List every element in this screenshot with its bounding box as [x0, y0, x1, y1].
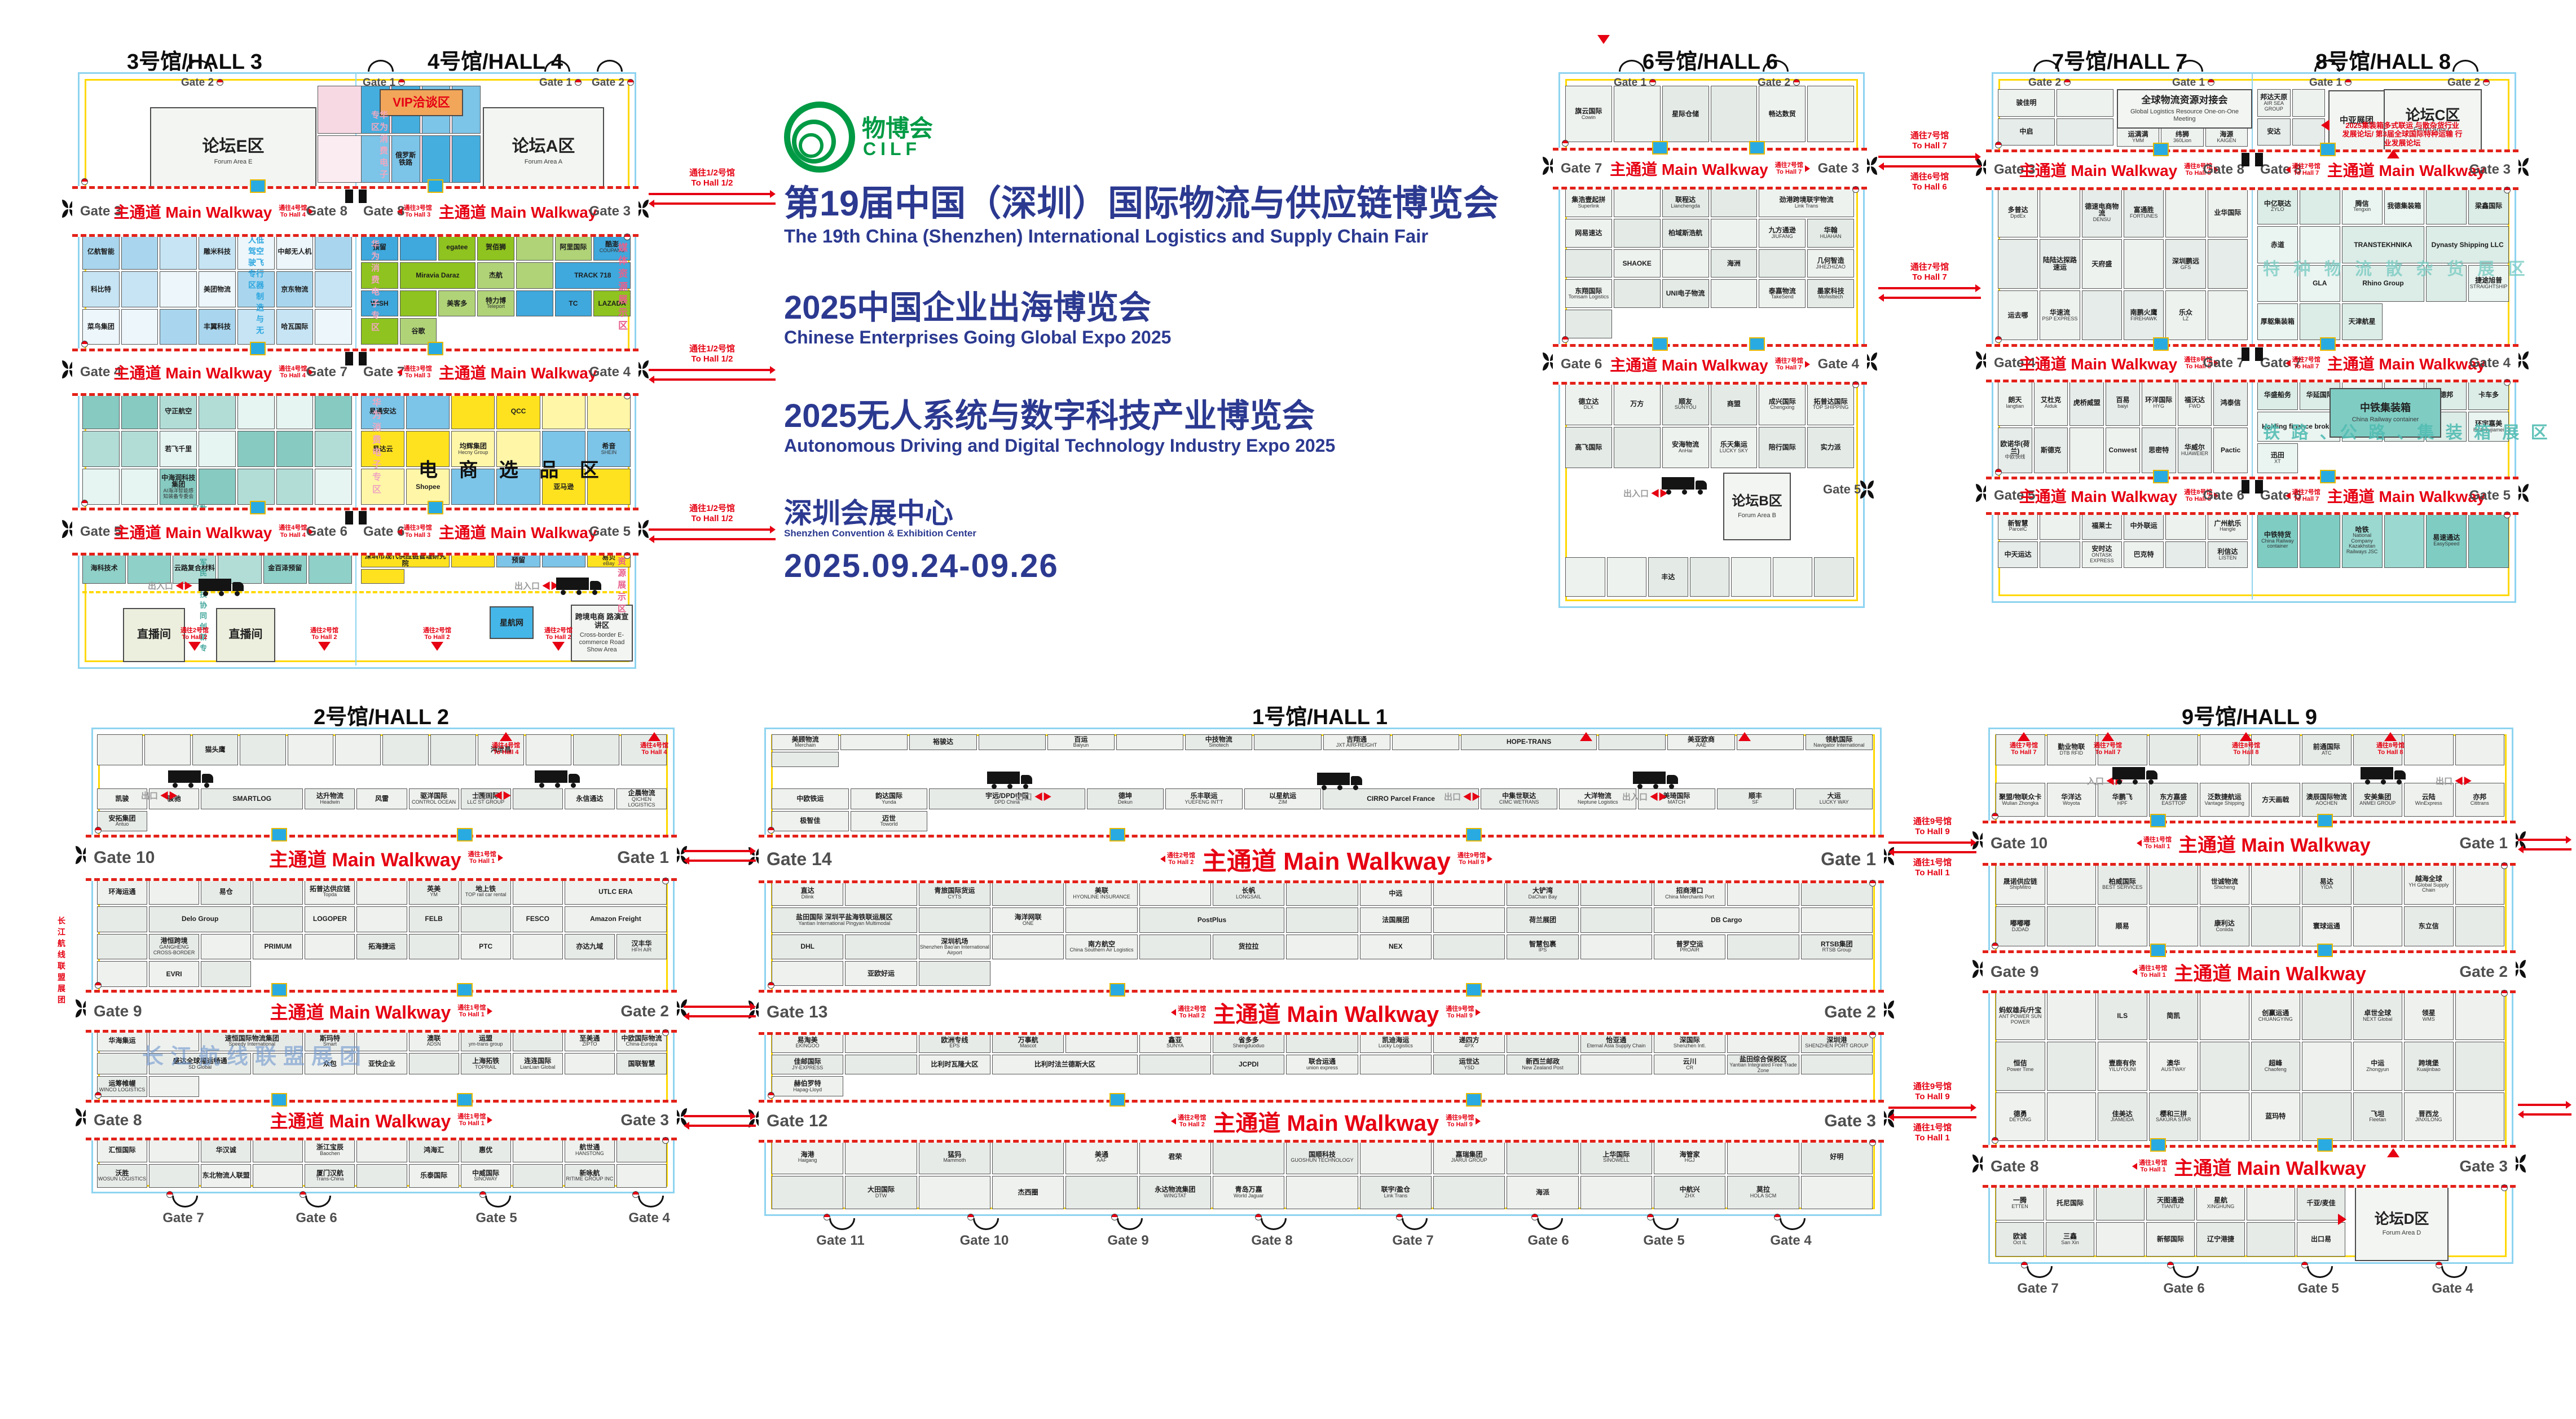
booth-feature: 环海运通: [97, 879, 147, 905]
connector-arrow-right: [1878, 153, 1981, 161]
arrow-bar: [654, 538, 776, 540]
booth-cell: [919, 1176, 990, 1210]
main-walkway: Gate 5主通道 Main Walkway通往4号馆To Hall 4Gate…: [72, 508, 639, 556]
arrow-u-icon: [648, 732, 660, 741]
hydrant-icon: [1992, 1137, 1998, 1144]
booth-name-en: China Southern Air Logistics: [1069, 948, 1133, 953]
booth-name-zh: 顺丰: [1749, 792, 1762, 800]
expo3-title-zh: 2025无人系统与数字科技产业博览会: [784, 389, 1315, 437]
booth-name-en: langtian: [2006, 404, 2024, 409]
booth-cell: [1727, 935, 1799, 959]
walkway-annotation-text: 通往2号馆To Hall 2: [1178, 1006, 1206, 1019]
walkway-annotation-text: 通往2号馆To Hall 2: [1178, 1114, 1206, 1128]
booth-feature: 上海拓铁TOPRAIL: [461, 1053, 511, 1074]
booth-name-en: Power Time: [2007, 1067, 2034, 1073]
booth-feature: 蓝玛特: [2251, 1092, 2301, 1141]
gate-label: Gate 8: [2203, 162, 2244, 178]
booth-feature: 跨境堡Kuaijinbao: [2404, 1042, 2454, 1090]
door-wing: [642, 530, 649, 538]
hall-connector: 通往1/2号馆To Hall 1/2: [649, 504, 776, 543]
booth-feature: 凯迪海运Lucky Logistics: [1360, 1033, 1432, 1053]
booth-name-zh: 预留: [512, 557, 525, 564]
connector-label-top-en: To Hall 9: [1913, 1092, 1952, 1102]
booth-cell: [406, 393, 450, 429]
truck-part: [204, 783, 209, 788]
booth-cell: [2455, 864, 2505, 905]
booth-name-en: JY-EXPRESS: [792, 1065, 823, 1071]
booth-feature: 深圳港SHENZHEN PORT GROUP: [1801, 1033, 1873, 1053]
booth-feature: 华盛船务: [2257, 380, 2298, 410]
arrow-bar: [689, 860, 756, 862]
truck-icon: [1633, 769, 1683, 790]
booth-name-en: Dekun: [1118, 800, 1133, 805]
booth-name-en: Wulian Zhongka: [2002, 801, 2038, 807]
hydrant-icon: [824, 1214, 830, 1220]
booth-feature: 赫伯罗特Hapag-Lloyd: [772, 1076, 843, 1096]
direction-arrow-label: 通往4号馆To Hall 4: [640, 742, 668, 756]
booth-name-zh: 裕骏达: [933, 738, 953, 746]
booth-name-en: AOCHEN: [2315, 801, 2337, 807]
booth-name-zh: 梁鑫国际: [2475, 202, 2502, 210]
booth-name-zh: 亿航智能: [87, 248, 115, 255]
direction-arrow: [2371, 149, 2416, 158]
walkway-annotation-zh: 通往3号馆: [404, 365, 432, 372]
booth-cell: [1801, 1055, 1873, 1075]
booth-feature: 易淘美EKINGOO: [772, 1033, 843, 1053]
gate-label: Gate 6: [2163, 1281, 2204, 1297]
booth-cell: [1801, 907, 1873, 932]
truck-icon: [2112, 765, 2162, 785]
booth-name-en: LONGSAIL: [1236, 894, 1261, 900]
booth-name-zh: 网易速达: [1575, 230, 1602, 237]
door-icon: [1860, 481, 1874, 499]
booth-name-zh: 福莱士: [2091, 522, 2112, 530]
walkway-annotation-text: 通往1号馆To Hall 1: [2139, 965, 2167, 979]
direction-arrow-label-zh: 通往4号馆: [492, 742, 520, 749]
main-walkway: Gate 10通往1号馆To Hall 1主通道 Main WalkwayGat…: [1983, 821, 2516, 866]
walkway-annotation-en: To Hall 2: [1178, 1121, 1206, 1128]
gate-label: Gate 1: [2309, 77, 2342, 89]
walkway-annotation-zh: 通往4号馆: [279, 525, 307, 531]
booth-cell: [526, 734, 571, 765]
booth-cell: [2047, 864, 2097, 905]
arrow-r-icon: [770, 526, 776, 534]
booth-name-zh: 南鹏火鹰: [2130, 309, 2157, 316]
booth-name-en: union express: [1306, 1065, 1338, 1071]
booth-feature: UNI电子物流: [1662, 279, 1709, 308]
hydrant-icon: [632, 1191, 639, 1198]
connector-label-top: 通往7号馆To Hall 7: [1910, 262, 1949, 283]
booth-feature: 比利时法兰德斯大区: [992, 1055, 1138, 1075]
booth-name-zh: 新郁国际: [2157, 1236, 2184, 1243]
booth-name-en: 中欧快线: [2005, 455, 2025, 460]
booth-band: 集浩壹起拼Superlink联程达Lianchengda劲港跨境联宇物流Link…: [1565, 188, 1854, 338]
door-block: [2242, 153, 2249, 166]
arrow-bar: [684, 1115, 750, 1117]
feature-box-label-en: Forum Area E: [214, 158, 253, 166]
booth-cell: [2251, 864, 2301, 905]
booth-feature: 连连国际LianLian Global: [513, 1053, 563, 1074]
booth-feature: 英美YM: [409, 879, 459, 905]
connector-arrow-right: [684, 1003, 756, 1011]
walkway-segment: Gate 13通往2号馆To Hall 2主通道 Main Walkway通往9…: [759, 993, 1884, 1032]
booth-feature: 风雷: [356, 788, 407, 809]
elevator-icon: [457, 983, 473, 997]
booth-feature: 亿航智能: [82, 234, 120, 270]
connector-arrow-right: [1888, 839, 1976, 847]
booth-name-zh: PRIMUM: [264, 943, 292, 950]
booth-feature: 环洋国际HYG: [2142, 380, 2176, 426]
booth-name-zh: 连连国际: [524, 1057, 551, 1065]
booth-cell: [2165, 188, 2205, 237]
booth-band: 德立达DLX万方顺友SUNYOU商盟成兴国际Chengxing拓普达国际TOP …: [1565, 384, 1854, 468]
gate-label: Gate 2: [2459, 963, 2508, 981]
booth-feature: Conwest: [2106, 428, 2140, 473]
truck-part: [2148, 779, 2154, 785]
booth-feature: egatee: [438, 234, 475, 261]
booth-feature: 中天运达: [1998, 541, 2038, 569]
booth-feature: 中集世联达CIMC WETRANS: [1481, 788, 1558, 809]
booth-feature: 中邮无人机: [276, 234, 314, 270]
truck-part: [1023, 784, 1028, 789]
booth-name-en: Mascot: [1020, 1043, 1036, 1049]
booth-feature: 迈世Toworld: [851, 811, 928, 832]
main-walkway: Gate 3主通道 Main Walkway通往4号馆To Hall 4Gate…: [72, 186, 639, 237]
booth-name-en: ADSN: [427, 1042, 441, 1047]
booth-feature: 利信达LISTEN: [2208, 541, 2248, 569]
walkway-annotation-en: To Hall 3: [404, 211, 432, 218]
booth-feature: 美客多: [438, 290, 475, 317]
direction-arrow-label-zh: 通往2号馆: [544, 627, 573, 634]
truck-part: [1637, 784, 1643, 789]
connector-arrow-left: [2518, 1110, 2571, 1118]
booth-feature: 墨家科技Mohisttech: [1807, 279, 1854, 308]
booth-cell: [315, 469, 352, 505]
booth-feature: 辽宁港捷: [2196, 1222, 2245, 1257]
arrow-u-icon: [2387, 149, 2399, 158]
booth-cell: [121, 393, 158, 429]
booth-name-zh: Miravia Daraz: [416, 272, 459, 279]
booth-name-zh: 蓝玛特: [2265, 1113, 2286, 1120]
booth-cell: [2302, 991, 2352, 1040]
booth-cell: [2047, 906, 2097, 947]
booth-cell: [149, 1076, 199, 1097]
door-wing: [2520, 969, 2526, 978]
booth-name-zh: 东方嘉盛: [2160, 794, 2187, 801]
booth-name-zh: 丰达: [1661, 574, 1675, 581]
booth-name-en: eBay: [603, 561, 615, 567]
booth-name-en: HYONLINE INSURANCE: [1073, 894, 1130, 900]
walkway-center: 通往3号馆To Hall 3主通道 Main Walkway: [409, 521, 584, 543]
connector-label-bottom: 通往1号馆To Hall 1: [1913, 858, 1952, 878]
booth-cell: [2426, 188, 2467, 224]
booth-feature: Delo Group: [149, 906, 251, 932]
booth-name-zh: JCPDI: [1239, 1061, 1258, 1068]
booth-feature: 中航兴ZHX: [1654, 1176, 1725, 1210]
booth-feature: 丰达: [1648, 557, 1688, 597]
booth-cell: [315, 431, 352, 467]
booth-name-zh: 陪行国际: [1769, 444, 1796, 451]
booth-cell: [253, 906, 303, 932]
entrance-label: 出入口 ◀▶: [1622, 791, 1667, 803]
booth-name-zh: 泛数捷航运: [2208, 794, 2242, 801]
booth-name-zh: 达升物流: [316, 792, 344, 800]
booth-cell: [992, 881, 1064, 906]
booth-feature: 福莱士: [2082, 513, 2122, 540]
booth-cell: [1360, 1055, 1432, 1075]
walkway-annotation-text: 通往1号馆To Hall 1: [457, 1004, 486, 1018]
gate-label: Gate 7: [1561, 161, 1602, 177]
booth-feature: 运世达YSD: [1433, 1055, 1505, 1075]
gate-label: Gate 4: [1818, 356, 1859, 372]
feature-box-label-zh: VIP洽谈区: [393, 95, 450, 110]
booth-feature: 阿里国际: [555, 234, 592, 261]
hall-connector: 通往7号馆To Hall 7通往6号馆To Hall 6: [1878, 131, 1981, 192]
direction-arrow-label-zh: 通往2号馆: [180, 627, 209, 634]
truck-part: [203, 591, 208, 596]
connector-arrow-left: [1888, 848, 1976, 856]
hydrant-icon: [627, 79, 634, 86]
connector-label-bottom-zh: 通往6号馆: [1910, 172, 1949, 182]
gate-arch-icon: [1619, 60, 1645, 72]
booth-name-zh: 纬狮: [2176, 131, 2189, 138]
zone-vertical-label: 长江航线联盟展团: [58, 916, 65, 1018]
booth-band: 汇恒国际华汉诚浙江宝辰Baochen鸿海汇惠优航世通HANSTONG沃胜WOSU…: [97, 1138, 667, 1188]
direction-arrow-label-en: To Hall 4: [492, 749, 520, 756]
booth-cell: [1360, 1140, 1432, 1174]
booth-name-zh: 海派: [1536, 1189, 1549, 1196]
hydrant-icon: [662, 1137, 669, 1144]
booth-cell: [382, 734, 428, 765]
feature-box-label-zh: 论坛D区: [2375, 1210, 2429, 1228]
walkway-annotation: 通往2号馆To Hall 2: [1171, 1006, 1206, 1019]
arrow-l-icon: [2132, 1163, 2137, 1170]
door-wing: [1543, 362, 1549, 371]
door-wing: [62, 520, 68, 528]
walkway-annotation: 通往2号馆To Hall 2: [1171, 1114, 1206, 1128]
booth-cell: [1213, 1140, 1284, 1174]
gate-label: Gate 10: [1991, 834, 2047, 852]
booth-feature: 安达: [2257, 118, 2291, 146]
booth-name-en: Navigator International: [1813, 743, 1865, 748]
booth-feature: 虎桥威盟: [2069, 380, 2104, 426]
door-wing: [1860, 490, 1866, 499]
direction-arrow-label-zh: 通往7号馆: [2094, 742, 2122, 749]
booth-band: 聚盟/物联众卡Wulian Zhongka华洋达Woyota华鹏飞HPF东方嘉盛…: [1996, 783, 2504, 817]
truck-part: [1662, 477, 1694, 490]
booth-cell: [1998, 239, 2038, 289]
booth-name-zh: 中天运达: [2005, 551, 2032, 558]
booth-cell: [461, 906, 511, 932]
booth-name-zh: 越海全球: [2415, 875, 2442, 883]
booth-cell: [1727, 1140, 1799, 1174]
booth-cell: [2149, 864, 2199, 905]
gate-label: Gate 2: [2028, 77, 2061, 89]
booth-name-zh: EVRI: [166, 971, 182, 978]
zone-watermark-label: 特 种 物 流 散 杂 货 展 区: [2263, 255, 2530, 280]
booth-name-en: TakeSend: [1771, 294, 1794, 300]
truck-icon: [2361, 765, 2410, 785]
walkway-label: 主通道 Main Walkway: [2019, 158, 2178, 181]
hall-connector: 通往1/2号馆To Hall 1/2: [649, 168, 776, 208]
booth-cell: [1759, 249, 1806, 278]
booth-feature: 澳华AUSTWAY: [2149, 1042, 2199, 1090]
booth-feature: 畅达数贸: [1759, 86, 1806, 142]
booth-feature: 巴克特: [2124, 541, 2164, 569]
direction-arrow: 通往4号馆To Hall 4: [483, 732, 529, 756]
booth-name-zh: 杰西圈: [1018, 1189, 1038, 1196]
booth-name-zh: 天府盛: [2091, 261, 2112, 268]
gate-arch-icon: [597, 60, 623, 72]
arrow-r-icon: [2338, 1214, 2346, 1225]
elevator-icon: [2320, 470, 2336, 483]
hall-connector: 通往1/2号馆To Hall 1/2: [649, 344, 776, 384]
booth-name-en: Link Trans: [1795, 204, 1818, 209]
booth-feature: 福沃达FWD: [2178, 380, 2212, 426]
gate-label: Gate 3: [589, 204, 631, 219]
booth-name-zh: 亚快企业: [368, 1060, 395, 1068]
gate-label: Gate 5: [2469, 488, 2511, 504]
booth-name-en: STRAIGHTSHIP: [2470, 284, 2508, 290]
booth-cell: [845, 881, 917, 906]
zone-vertical-label: 华为消费电子专区: [371, 111, 387, 184]
direction-arrow-label: 通往8号馆To Hall 8: [2232, 742, 2260, 756]
arrow-l-icon: [2286, 492, 2291, 499]
booth-name-en: LUCKY WAY: [1820, 800, 1849, 805]
truck-icon: [168, 768, 218, 788]
booth-name-en: DaChan Bay: [1528, 894, 1557, 900]
booth-cell: [2200, 1042, 2249, 1090]
door-wing: [62, 360, 68, 369]
truck-part: [987, 772, 1020, 784]
walkway-segment: Gate 8通往3号馆To Hall 3主通道 Main WalkwayGate…: [355, 189, 639, 234]
booth-feature: ILS: [2098, 991, 2147, 1040]
gate-label: Gate 2: [181, 77, 214, 89]
elevator-icon: [2153, 337, 2169, 351]
booth-feature: 达升物流Headwin: [305, 788, 355, 809]
walkway-center: 主通道 Main Walkway通往8号馆To Hall 8: [2040, 484, 2198, 507]
booth-feature: 顺易: [2098, 906, 2147, 947]
booth-feature: 上华国际SINOWELL: [1580, 1140, 1652, 1174]
booth-feature: 华鹏飞HPF: [2098, 783, 2147, 817]
booth-name-en: ONE: [1023, 921, 1034, 927]
elevator-icon: [1749, 141, 1765, 155]
cilf-logo-icon: [784, 100, 857, 168]
main-walkway: Gate 4主通道 Main Walkway通往4号馆To Hall 4Gate…: [72, 349, 639, 396]
walkway-label: 主通道 Main Walkway: [2327, 158, 2486, 181]
booth-band: 亿航智能雕米科技中邮无人机科比特美团物流京东物流菜鸟集团丰翼科技哈瓦国际: [82, 234, 352, 345]
truck-part: [2361, 767, 2393, 779]
booth-cell: [2292, 89, 2326, 117]
hall-title: 2号馆/HALL 2: [314, 699, 449, 730]
booth-feature: 东立信: [2404, 906, 2454, 947]
booth-name-zh: PTC: [479, 943, 492, 950]
gate-label: Gate 8: [306, 204, 347, 219]
booth-name-en: EPS: [949, 1043, 959, 1049]
walkway-annotation: 通往3号馆To Hall 3: [397, 525, 432, 538]
booth-feature: 海洲: [1711, 249, 1758, 278]
connector-label-top-en: To Hall 7: [1910, 272, 1949, 283]
booth-name-zh: 柏域斯浩航: [1668, 230, 1702, 237]
booth-name-zh: CIRRO Parcel France: [1367, 795, 1435, 803]
booth-cell: [121, 271, 158, 307]
booth-name-en: Teleport: [487, 304, 505, 310]
walkway-center: 通往3号馆To Hall 3主通道 Main Walkway: [409, 200, 584, 223]
walkway-annotation-zh: 通往1号馆: [2139, 965, 2167, 972]
walkway-annotation-en: To Hall 7: [2292, 170, 2320, 177]
walkway-annotation: 通往1号馆To Hall 1: [2137, 836, 2172, 850]
booth-name-zh: 比利时瓦隆大区: [931, 1061, 978, 1068]
booth-name-en: Zhongyun: [2366, 1067, 2389, 1073]
arrow-bar: [1884, 297, 1981, 299]
booth-name-zh: 亦达九域: [576, 943, 603, 950]
booth-name-zh: 法国展团: [1382, 916, 1409, 924]
booth-name-zh: 德坤: [1119, 792, 1132, 800]
booth-feature: 德勇DEYONG: [1996, 1092, 2045, 1141]
booth-cell: [2247, 1186, 2295, 1220]
door-block: [2255, 153, 2263, 166]
booth-name-zh: 巴克特: [2134, 551, 2154, 558]
walkway-annotation-text: 通往4号馆To Hall 4: [279, 525, 307, 538]
booth-feature: 凯骏: [97, 788, 147, 809]
direction-arrow-label-en: To Hall 8: [2232, 749, 2260, 756]
direction-arrow: 通往7号馆To Hall 7: [2085, 732, 2130, 756]
booth-name-zh: 亚欧好运: [868, 970, 895, 977]
direction-arrow: 通往8号馆To Hall 8: [2223, 732, 2269, 756]
booth-feature: 猫头鹰: [192, 734, 238, 765]
booth-name-zh: 实力派: [1821, 444, 1841, 451]
booth-name-zh: 利信达: [2217, 548, 2238, 556]
booth-cell: [513, 1164, 563, 1188]
booth-name-zh: 澳辰国际物流: [2306, 794, 2347, 801]
booth-name-en: Toworld: [880, 822, 897, 827]
walkway-label: 主通道 Main Walkway: [2178, 830, 2371, 857]
booth-feature: 易达云: [361, 431, 404, 467]
booth-cell: [845, 1055, 917, 1075]
booth-name-en: BEST SERVICES: [2102, 885, 2142, 891]
booth-cell: [2300, 513, 2340, 568]
walkway-annotation-text: 通往4号馆To Hall 4: [279, 365, 307, 379]
connector-label-top-zh: 通往9号馆: [1913, 817, 1952, 827]
booth-feature: 晋西龙JINXILONG: [2404, 1092, 2454, 1141]
booth-feature: 欧诚Oct IL: [1996, 1222, 2044, 1257]
booth-feature: 深圳机场Shenzhen Bao'an International Airpor…: [919, 935, 990, 959]
walkway-label: 主通道 Main Walkway: [1202, 841, 1451, 877]
booth-name-en: YIDA: [2320, 885, 2332, 891]
booth-cell: [400, 234, 437, 261]
gate-label: Gate 7: [306, 364, 347, 380]
booth-name-zh: 赤道: [2271, 241, 2284, 249]
walkway-annotation-en: To Hall 9: [1446, 1121, 1474, 1128]
booth-name-en: China-Europa: [626, 1042, 658, 1047]
booth-feature: 卓世全球NEXT Global: [2353, 991, 2403, 1040]
booth-band: 晟诺供应链ShipMitro柏威国际BEST SERVICES世诚物流Shich…: [1996, 864, 2504, 946]
booth-name-en: SF: [1752, 800, 1759, 805]
booth-name-zh: 创赢运通: [2262, 1010, 2289, 1017]
walkway-segment: Gate 7通往3号馆To Hall 3主通道 Main WalkwayGate…: [355, 351, 639, 393]
walkway-center: 主通道 Main Walkway通往8号馆To Hall 8: [2040, 352, 2198, 374]
feature-box-label-zh: 中铁集装箱: [2360, 402, 2411, 414]
walkway-label: 主通道 Main Walkway: [114, 361, 272, 384]
booth-feature: 广州航乐Hangle: [2208, 513, 2248, 540]
booth-feature: 中欧国际物流China-Europa: [617, 1030, 667, 1051]
booth-name-en: JINXILONG: [2415, 1117, 2442, 1123]
booth-name-en: MATCH: [1668, 800, 1685, 805]
hydrant-icon: [2504, 379, 2511, 386]
booth-feature: 安美集团ANMEI GROUP: [2353, 783, 2403, 817]
hydrant-icon: [1649, 79, 1656, 86]
arrow-l-icon: [2137, 840, 2142, 847]
